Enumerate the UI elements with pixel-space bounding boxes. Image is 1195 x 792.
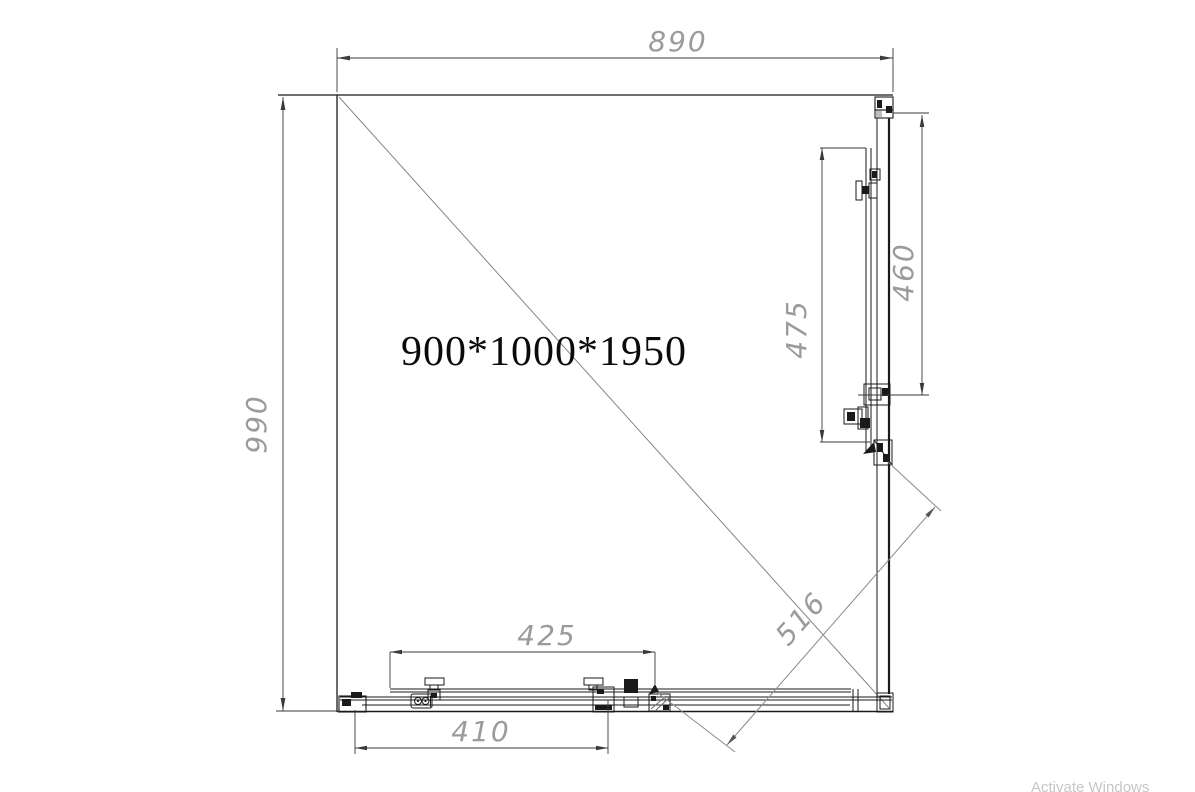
shower-enclosure-plan-drawing: 890 990 475 460 425 xyxy=(0,0,1195,792)
dim-475-label: 475 xyxy=(780,299,813,358)
dim-990-label: 990 xyxy=(240,394,273,453)
dimension-890 xyxy=(337,48,893,92)
right-door-handle xyxy=(856,169,880,200)
bottom-door-stop-blocks xyxy=(624,679,638,707)
dimension-425 xyxy=(390,650,655,688)
size-title: 900*1000*1950 xyxy=(401,329,687,375)
bottom-left-wall-bracket xyxy=(339,692,366,712)
dim-516-label: 516 xyxy=(769,586,833,652)
dim-890-label: 890 xyxy=(648,25,707,58)
dim-410-label: 410 xyxy=(451,715,510,748)
right-top-corner-bracket xyxy=(875,97,893,118)
dim-460-label: 460 xyxy=(887,242,920,301)
drawing-canvas: 890 990 475 460 425 xyxy=(0,0,1195,792)
dim-516-line xyxy=(727,507,935,745)
bottom-door-guide xyxy=(411,694,432,708)
activate-windows-watermark: Activate Windows xyxy=(1031,779,1149,792)
dimension-990 xyxy=(276,97,340,711)
dim-425-label: 425 xyxy=(517,619,576,652)
dim-516-ext-upper xyxy=(888,462,941,511)
right-fixed-panel xyxy=(877,118,889,694)
right-door-bottom-hardware xyxy=(844,384,890,429)
dim-516-ext-lower xyxy=(654,690,735,752)
